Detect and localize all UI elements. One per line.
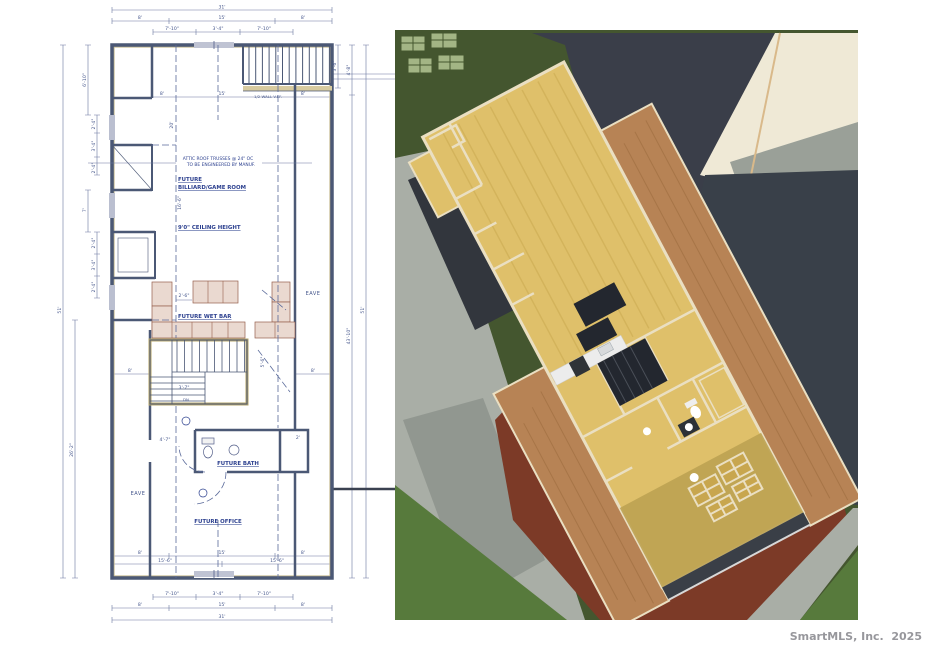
dim: 3'-4" — [91, 260, 97, 271]
sink-icon — [229, 445, 239, 455]
render-3d-image[interactable] — [395, 30, 858, 620]
dim: 3'-6" — [332, 61, 338, 72]
toilet-tank — [202, 438, 214, 444]
dim: 16'-6" — [177, 196, 183, 210]
note-down: DN — [183, 397, 189, 402]
dim: 8' — [301, 602, 305, 608]
interior-walls — [112, 45, 295, 578]
dim: 2'-4" — [91, 282, 97, 293]
dim: 31' — [218, 614, 225, 620]
note-half-wall: 1/2 WALL V.I.F. — [254, 94, 282, 99]
dim: 8' — [138, 602, 142, 608]
dim: 51' — [57, 306, 63, 313]
label-office: FUTURE OFFICE — [194, 519, 242, 525]
extension-lines-top — [332, 74, 395, 79]
dim: 6'-10" — [82, 73, 88, 87]
dim: 2'-4" — [91, 119, 97, 130]
dim: 43'-10" — [346, 328, 352, 345]
wet-bar-cabinets — [152, 281, 295, 338]
dim: 7'-10" — [257, 591, 271, 597]
dim: 2' — [296, 435, 300, 441]
dim: 15' — [218, 602, 225, 608]
floor-plan-image[interactable]: ATTIC ROOF TRUSSES @ 24" OC TO BE ENGINE… — [0, 0, 395, 647]
stairs-upper — [243, 45, 332, 91]
dim: 8' — [301, 15, 305, 21]
dim: 8' — [138, 550, 142, 556]
exterior-walls — [112, 45, 332, 578]
dim: 2'-6" — [179, 293, 190, 299]
bath — [182, 417, 308, 497]
dim: 8' — [128, 368, 132, 374]
label-future: FUTURE — [178, 177, 202, 183]
roof-break-lines — [88, 45, 312, 578]
dim: 8' — [138, 15, 142, 21]
note-truss-2: TO BE ENGINEERED BY MANUF. — [186, 162, 255, 168]
dim: 15' — [218, 15, 225, 21]
dim: 15'-6" — [270, 558, 284, 564]
door-tag-circle — [182, 417, 190, 425]
stairs-center — [150, 340, 247, 404]
dim: 15' — [218, 91, 225, 97]
dim: 8' — [301, 91, 305, 97]
dim: 2'-4" — [91, 163, 97, 174]
dim: 7'-10" — [257, 26, 271, 32]
dim: 26'-2" — [69, 443, 75, 457]
label-eave-left: EAVE — [131, 491, 146, 497]
door-tag-circle — [199, 489, 207, 497]
mls-photo-page: ATTIC ROOF TRUSSES @ 24" OC TO BE ENGINE… — [0, 0, 930, 647]
dim: 8' — [311, 368, 315, 374]
dim: 7'-10" — [165, 591, 179, 597]
note-truss-1: ATTIC ROOF TRUSSES @ 24" OC — [183, 156, 253, 162]
label-ceiling-height: 9'0" CEILING HEIGHT — [178, 225, 241, 231]
half-wall — [243, 86, 332, 91]
dim: 15'-6" — [158, 558, 172, 564]
dim: 3'-4" — [91, 141, 97, 152]
dim: 5'-6" — [260, 357, 266, 368]
dim: 8' — [301, 550, 305, 556]
dim: 4'-8" — [346, 65, 352, 76]
dim: 2'-4" — [91, 238, 97, 249]
label-billiard-room: BILLIARD/GAME ROOM — [178, 185, 246, 191]
dim: 20' — [169, 121, 175, 128]
label-bath: FUTURE BATH — [217, 461, 259, 467]
label-wet-bar: FUTURE WET BAR — [178, 314, 232, 320]
dim: 4'-7" — [160, 437, 171, 443]
watermark: SmartMLS, Inc. 2025 — [790, 630, 922, 643]
dim: 7'-10" — [165, 26, 179, 32]
dim: 3'-7" — [179, 385, 190, 391]
label-eave-right: EAVE — [306, 291, 321, 297]
dim: 7' — [82, 208, 88, 212]
dim: 3'-4" — [213, 591, 224, 597]
dim: 3'-4" — [213, 26, 224, 32]
dim: 15' — [218, 550, 225, 556]
dim: 51' — [360, 306, 366, 313]
door-swings — [179, 446, 226, 504]
toilet-icon — [204, 446, 213, 458]
dim: 8' — [160, 91, 164, 97]
dim: 31' — [218, 5, 225, 11]
